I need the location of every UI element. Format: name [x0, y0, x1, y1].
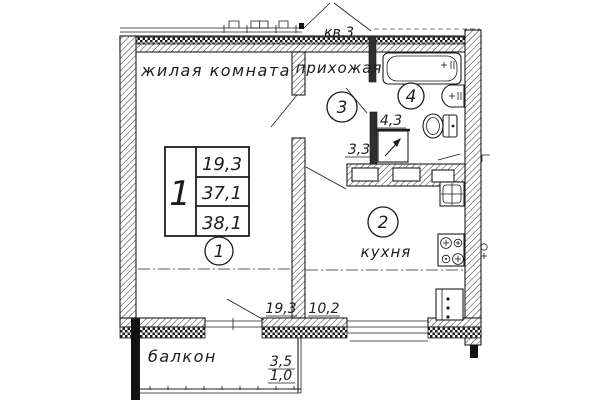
kitchen: 2 кухня 10,2 [308, 182, 464, 320]
living-room-area: 19,3 [265, 301, 296, 317]
wardrobe-cell [393, 168, 420, 181]
fridge-icon [436, 289, 463, 320]
bathroom-number: 4 [406, 87, 417, 107]
adjacent-block [299, 23, 304, 29]
bathtub-icon [383, 53, 461, 84]
wardrobe-door-mark [438, 154, 460, 160]
balcony-door-window [205, 299, 264, 330]
electric-panel-icon [376, 130, 410, 162]
table-total-area-balcony: 38,1 [202, 213, 242, 234]
kitchen-area: 10,2 [308, 301, 339, 317]
washbasin-icon [442, 85, 464, 107]
wardrobe-area: 4,3 [380, 113, 402, 129]
left-wall [120, 36, 136, 318]
balcony-area-coeff: 1,0 [270, 368, 292, 384]
wardrobe-cell [432, 170, 454, 182]
middle-wall-lower [292, 138, 305, 318]
top-wall-facing [121, 37, 479, 44]
living-room-label: жилая комната [140, 61, 291, 80]
kitchen-window [347, 321, 428, 341]
table-total-area: 37,1 [202, 183, 242, 204]
hallway-number: 3 [337, 98, 348, 118]
riser-circle-icon [481, 244, 487, 250]
kitchen-door-swing [306, 167, 346, 189]
kitchen-label: кухня [361, 243, 412, 261]
floor-plan-page: балкон 3,5 1,0 жилая комната 1 19,3 37,1… [0, 0, 605, 403]
bathroom-number-badge: 4 [398, 83, 424, 109]
wardrobe-cell [352, 168, 378, 181]
living-room-number-badge: 1 [205, 237, 233, 265]
apartment-label: кв.3 [324, 25, 354, 41]
adjacent-sink-icon [279, 21, 288, 28]
structural-edge-right [470, 345, 478, 358]
adjacent-sink-icon [229, 21, 239, 28]
bottom-wall-facing [262, 327, 347, 338]
hallway-area: 3,3 [348, 142, 370, 158]
balcony-door-swing [227, 299, 264, 320]
living-room: жилая комната 1 19,3 37,1 38,1 1 19,3 [140, 61, 297, 317]
riser-bracket-icon [482, 155, 490, 162]
toilet-icon [423, 114, 457, 138]
hallway-label: прихожая [296, 59, 383, 77]
kitchen-number-badge: 2 [368, 207, 398, 237]
adjacent-fixtures [120, 21, 480, 33]
kitchen-sink-icon [440, 182, 464, 206]
living-door-swing [271, 95, 297, 127]
right-wall [465, 30, 481, 345]
table-living-area: 19,3 [202, 154, 242, 175]
stove-icon [438, 234, 464, 266]
bathroom-wall-lower [370, 112, 377, 164]
bottom-wall-facing [428, 327, 481, 338]
hallway-number-badge: 3 [327, 92, 357, 122]
kitchen-number: 2 [378, 213, 389, 233]
riser-symbols [481, 155, 490, 259]
bottom-wall [262, 318, 347, 327]
table-flat-number: 1 [169, 174, 191, 214]
floor-plan-drawing: балкон 3,5 1,0 жилая комната 1 19,3 37,1… [0, 0, 605, 403]
balcony: балкон 3,5 1,0 [139, 338, 301, 393]
balcony-label: балкон [148, 347, 217, 366]
doors [271, 3, 371, 189]
living-room-number: 1 [214, 242, 225, 262]
apartment-info-table: 1 19,3 37,1 38,1 [165, 147, 249, 236]
